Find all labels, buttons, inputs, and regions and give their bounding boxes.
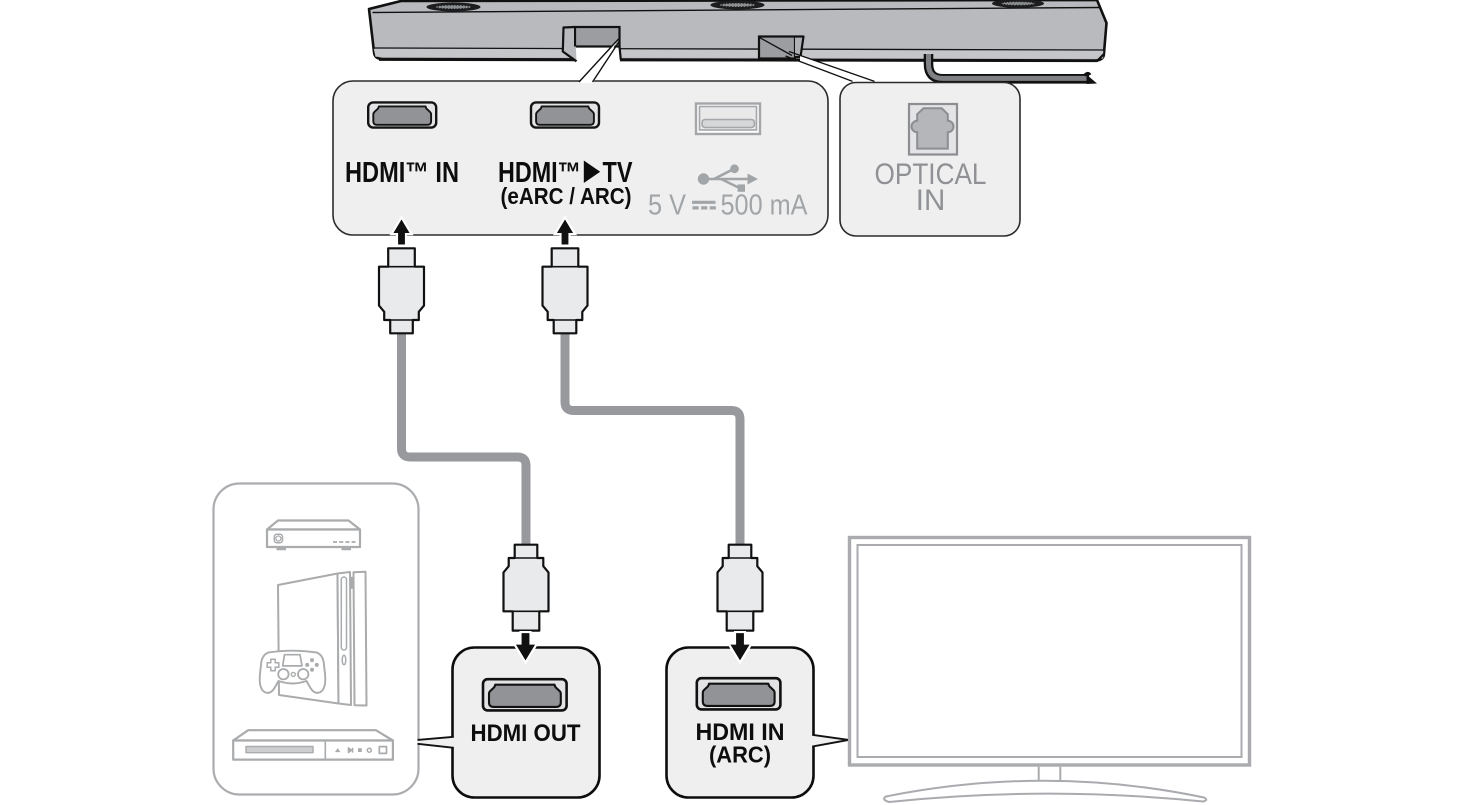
- svg-text:HDMI™ IN: HDMI™ IN: [345, 157, 459, 189]
- svg-text:HDMI OUT: HDMI OUT: [471, 720, 581, 747]
- svg-text:5 V: 5 V: [648, 190, 687, 222]
- svg-text:(ARC): (ARC): [709, 742, 771, 768]
- svg-text:500 mA: 500 mA: [721, 190, 809, 222]
- svg-text:(eARC / ARC): (eARC / ARC): [501, 183, 632, 209]
- svg-text:IN: IN: [916, 184, 946, 217]
